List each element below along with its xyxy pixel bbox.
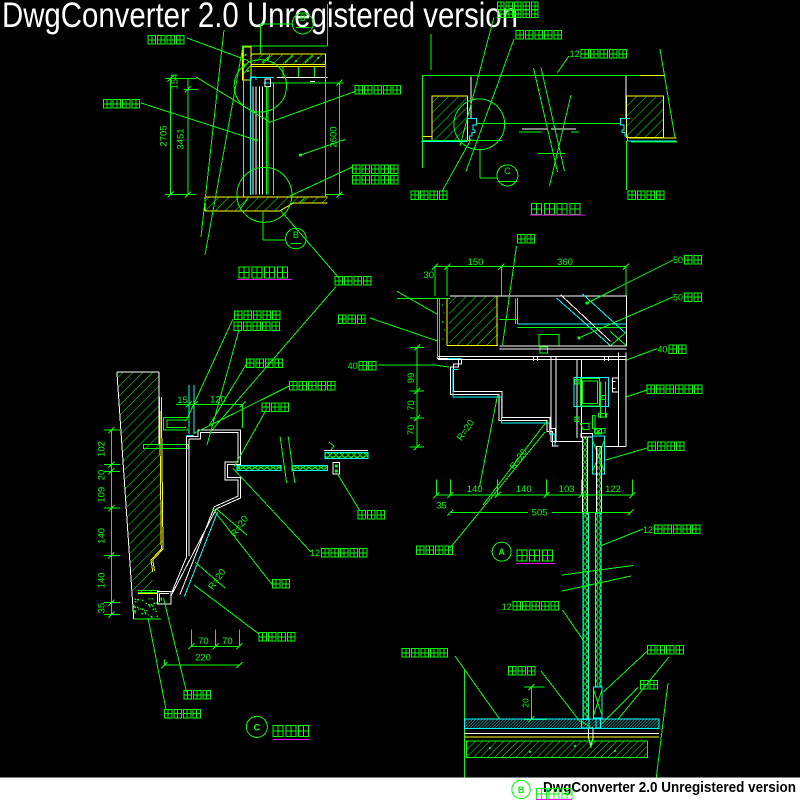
svg-text:122: 122: [605, 484, 621, 495]
svg-text:20: 20: [521, 698, 531, 708]
svg-text:140: 140: [97, 572, 108, 588]
svg-text:140: 140: [516, 484, 532, 495]
svg-text:35: 35: [97, 603, 108, 614]
svg-text:A: A: [498, 547, 505, 557]
svg-text:12: 12: [570, 49, 580, 59]
svg-text:50: 50: [673, 293, 683, 303]
svg-text:99: 99: [406, 373, 417, 384]
svg-text:109: 109: [97, 487, 108, 503]
svg-text:B: B: [518, 785, 525, 795]
svg-text:70: 70: [222, 636, 233, 647]
svg-text:154: 154: [170, 74, 181, 90]
svg-text:35: 35: [436, 501, 447, 512]
svg-text:B: B: [293, 230, 299, 240]
svg-text:150: 150: [468, 257, 484, 268]
svg-text:3451: 3451: [176, 128, 187, 149]
svg-text:70: 70: [406, 400, 417, 411]
svg-text:12: 12: [502, 602, 512, 612]
svg-text:102: 102: [97, 441, 108, 457]
svg-text:140: 140: [467, 484, 483, 495]
svg-text:70: 70: [406, 425, 417, 436]
svg-text:C: C: [504, 166, 511, 176]
svg-text:DwgConverter 2.0 Unregistered: DwgConverter 2.0 Unregistered version: [2, 0, 518, 35]
svg-text:20: 20: [97, 470, 108, 481]
svg-text:360: 360: [557, 257, 573, 268]
svg-text:103: 103: [559, 484, 575, 495]
svg-text:40: 40: [657, 345, 667, 355]
svg-text:50: 50: [673, 255, 683, 265]
svg-text:140: 140: [97, 528, 108, 544]
svg-text:40: 40: [348, 361, 358, 371]
svg-text:12: 12: [643, 525, 653, 535]
svg-text:12: 12: [310, 548, 320, 558]
svg-text:30: 30: [423, 270, 434, 281]
svg-text:15: 15: [177, 395, 188, 406]
svg-text:B: B: [300, 13, 306, 23]
svg-text:2705: 2705: [159, 125, 170, 146]
svg-text:505: 505: [532, 508, 548, 519]
svg-text:220: 220: [195, 653, 211, 664]
svg-text:DwgConverter 2.0 Unregistered: DwgConverter 2.0 Unregistered version: [543, 779, 796, 796]
svg-text:C: C: [253, 723, 260, 734]
svg-text:70: 70: [198, 636, 209, 647]
